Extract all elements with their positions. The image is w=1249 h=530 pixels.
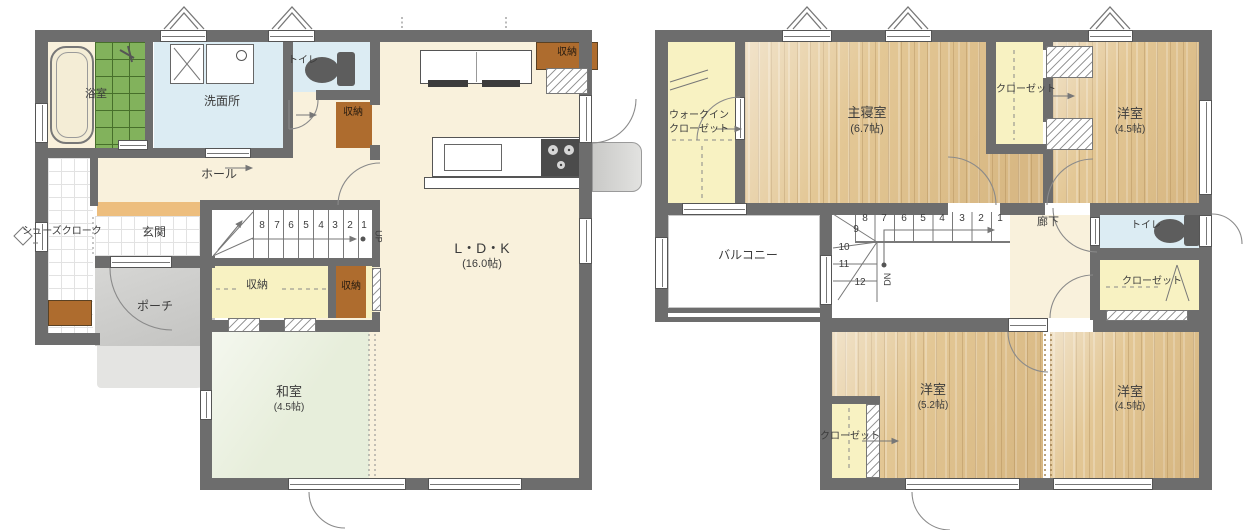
folding-door-icon [372,268,381,311]
label-master-size: (6.7帖) [850,123,884,136]
label-wic-line1: ウォークイン [669,110,729,122]
stove-icon [541,139,580,176]
stair-number: 1 [997,213,1003,225]
sliding-door [205,148,251,158]
wall [207,258,380,266]
label-se-bedroom: 洋室 [1117,384,1143,400]
label-closet-east: クローゼット [1122,276,1182,288]
wall [824,396,880,404]
label-balcony: バルコニー [718,248,778,262]
bath-door [118,140,148,150]
stair-number: 8 [259,220,265,232]
stair-number: 8 [862,213,868,225]
wall [283,90,290,100]
label-stairs-dn: DN [883,273,894,286]
stair-number: 6 [901,213,907,225]
door-leaf [1008,318,1048,332]
wall [735,42,745,97]
wall [820,318,1008,332]
label-closet-sw: クローゼット [820,431,880,443]
stairs-2f-run-edge [855,241,1010,243]
folding-door-icon [228,318,260,332]
window [782,30,832,42]
window [1199,215,1212,247]
label-porch: ポーチ [137,299,173,313]
window [820,255,832,305]
folding-door-icon [1046,46,1093,78]
door-leaf [1090,217,1100,246]
wall [1093,203,1210,215]
label-toilet-2f: トイレ [1131,220,1161,232]
label-storage-mid: 収納 [343,107,363,119]
wall [95,256,110,268]
stair-number: 12 [854,277,865,289]
balcony-rail [655,317,820,322]
label-washitsu-size: (4.5帖) [274,402,305,414]
label-stairs-up: UP [373,230,384,243]
toilet-icon [337,52,355,86]
wall [1199,30,1212,490]
folding-door-icon [1046,118,1093,150]
wall [1090,203,1100,217]
window [905,478,1020,490]
stair-number: 2 [978,213,984,225]
stair-number: 4 [939,213,945,225]
stair-number: 4 [318,220,324,232]
front-door-leaf [110,256,172,268]
balcony-window [682,203,747,215]
wall [90,158,98,206]
label-washroom: 洗面所 [204,94,240,108]
label-ldk: L・D・K [454,240,509,257]
wall [200,200,212,490]
wall [207,200,380,210]
stair-number: 3 [959,213,965,225]
label-se-bedroom-size: (4.5帖) [1115,401,1146,413]
stair-number: 2 [347,220,353,232]
room-storage-under-stairs [212,266,328,318]
stair-number: 5 [303,220,309,232]
kitchen-appliance-mark [428,80,468,87]
window [200,390,212,420]
label-hall: ホール [201,167,237,181]
wall [328,266,336,318]
window [1199,100,1212,195]
stair-number: 11 [839,259,849,271]
window [428,478,522,490]
wall [1000,203,1045,215]
label-master: 主寝室 [847,105,886,121]
sink-vanity-icon [206,44,254,84]
stairs-2f-run [855,212,1010,242]
folding-door-icon [284,318,316,332]
label-washitsu: 和室 [276,384,302,400]
window [655,237,668,289]
kitchen-appliance-mark [482,80,520,87]
terrace-door [288,478,406,490]
kitchen-counter-divider [476,52,477,82]
room-wic [668,42,735,203]
stairs-1f [253,210,373,258]
folding-door-icon [546,68,588,94]
washer-pan-icon [170,44,204,84]
stair-number: 7 [881,213,887,225]
wall [145,42,153,148]
label-storage-under-stairs: 収納 [246,279,268,292]
label-entrance: 玄関 [142,225,166,239]
wall [35,333,100,345]
label-closet-top: クローゼット [996,84,1056,96]
floor-plan: 浴室 洗面所 トイレ 収納 ホール シューズクローク 玄関 ポーチ 収納 収納 … [0,0,1249,530]
door-leaf [735,97,745,140]
wall [35,30,48,345]
outdoor-step-pad [592,142,642,192]
label-bathroom: 浴室 [85,88,107,101]
room-hallway-2f [1010,215,1090,318]
label-shoes-closet: シューズクローク [22,226,102,238]
label-ne-bedroom-size: (4.5帖) [1115,124,1146,136]
stair-number: 6 [288,220,294,232]
folding-door-icon [1106,310,1188,321]
stair-number: 1 [361,220,367,232]
wall [1043,148,1053,203]
wall [172,256,215,268]
label-sw-bedroom-size: (5.2帖) [918,400,949,412]
wall [986,42,996,154]
wall [820,203,832,490]
stair-number: 5 [920,213,926,225]
stair-number: 10 [838,242,849,254]
sink-faucet-icon [236,50,247,61]
window [160,30,207,42]
wall [35,148,290,158]
stair-number: 9 [853,224,859,236]
back-door-leaf [579,95,592,143]
label-ldk-size: (16.0帖) [462,258,502,271]
stair-number: 3 [332,220,338,232]
wall [370,42,380,105]
toilet-icon [1184,214,1200,246]
porch-approach [97,346,215,388]
label-wic-line2: クローゼット [669,124,729,136]
label-toilet-1f: トイレ [288,55,318,67]
balcony-rail [655,308,820,313]
kitchen-sink-icon [444,144,502,171]
wall [1090,248,1210,260]
window [1053,478,1153,490]
window [1088,30,1133,42]
label-sw-bedroom: 洋室 [920,382,946,398]
label-storage-brown-stairs: 収納 [341,281,361,293]
stairs-1f-winder [207,210,253,258]
window [268,30,315,42]
label-hallway: 廊下 [1037,216,1059,229]
label-ne-bedroom: 洋室 [1117,106,1143,122]
stair-number: 7 [274,220,280,232]
window [35,103,48,143]
wall [370,145,380,160]
window [579,218,592,264]
label-pantry: 収納 [557,47,577,59]
room-hall [95,158,285,204]
entry-step [97,202,205,216]
kitchen-island-lip [424,177,580,189]
wall [735,140,745,203]
shoe-cabinet [48,300,92,326]
window [885,30,932,42]
